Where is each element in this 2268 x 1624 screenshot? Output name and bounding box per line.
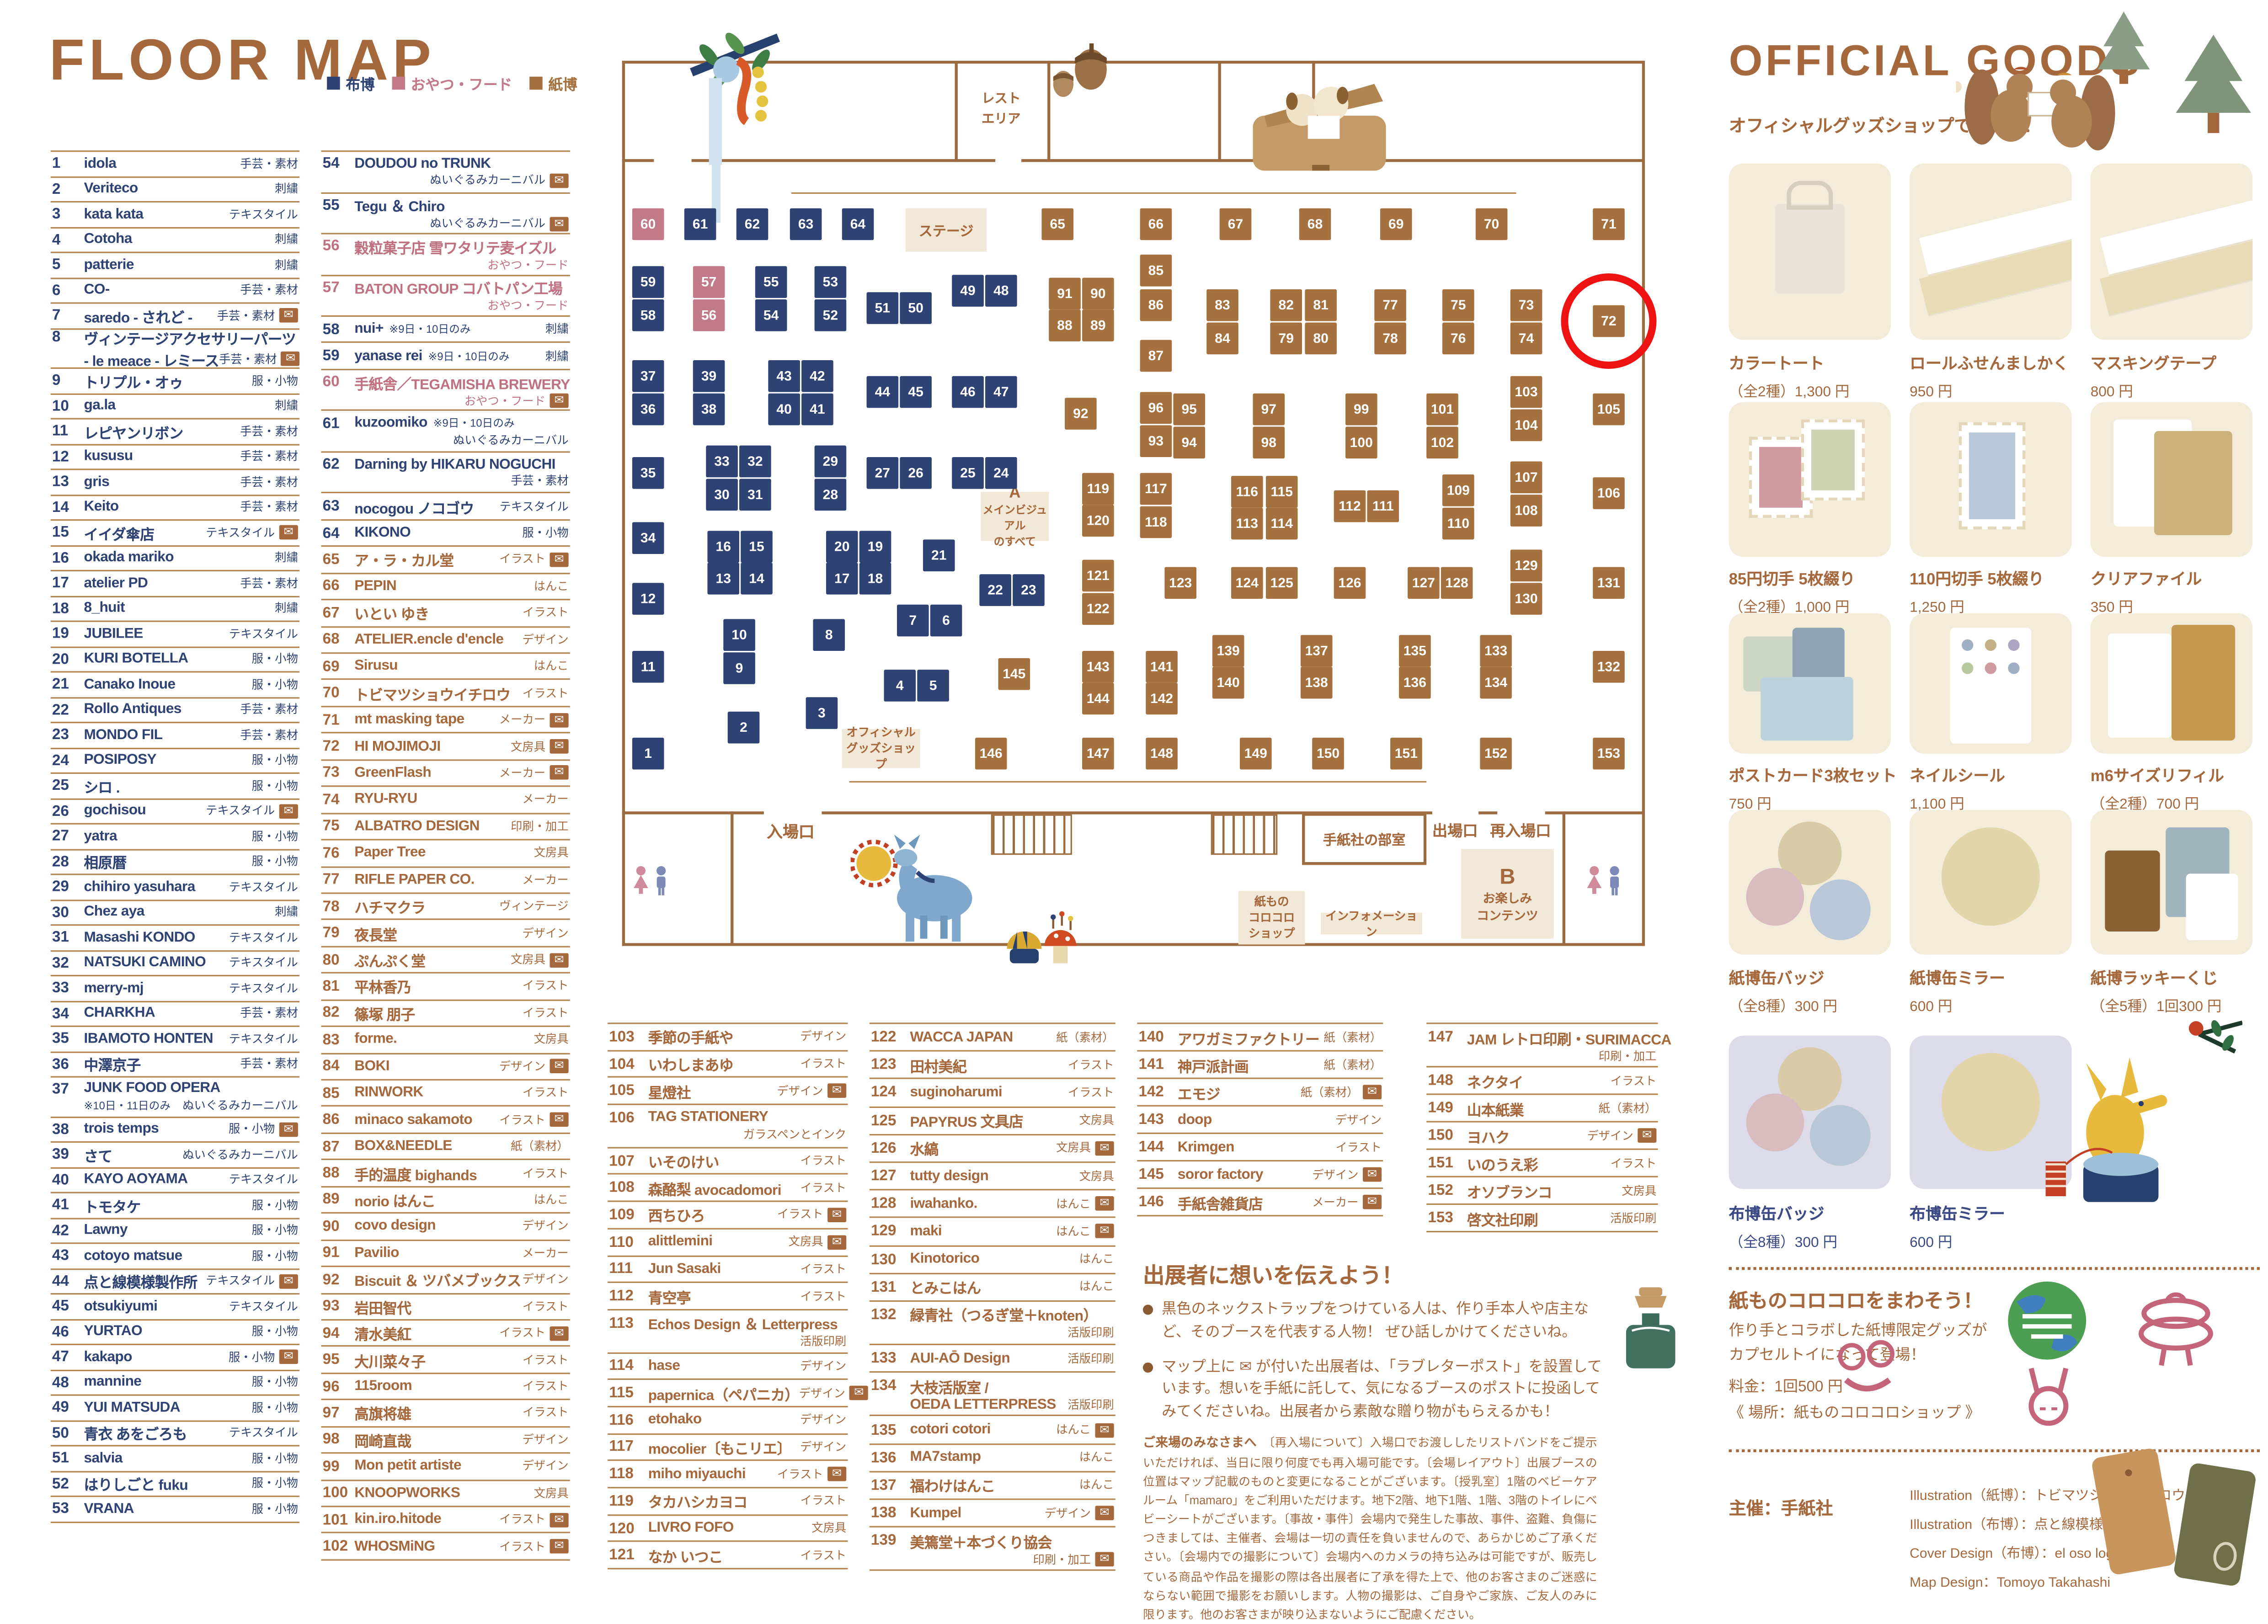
- category-label: 文房具: [811, 1520, 846, 1536]
- notebooks-illustration: [2092, 1441, 2266, 1592]
- exhibitor-row: 72HI MOJIMOJI文房具✉: [321, 732, 570, 759]
- mail-icon: ✉: [550, 173, 569, 188]
- exhibitor-row: 46YURTAO服・小物: [51, 1318, 299, 1343]
- cat-stamp-illustration: [2008, 1357, 2089, 1438]
- exhibitor-name: 美篶堂＋本づくり協会: [910, 1530, 1051, 1551]
- map-booth-8: 8: [813, 619, 845, 651]
- booth-number: 41: [52, 1197, 84, 1214]
- goods-photo-13: [1729, 1036, 1891, 1189]
- mail-icon: ✉: [550, 953, 569, 967]
- exhibitor-name: トビマツショウイチロウ: [354, 682, 510, 704]
- exhibitor-name: Jun Sasaki: [648, 1261, 721, 1277]
- category-label: 服・小物: [252, 752, 298, 768]
- booth-number: 97: [323, 1405, 355, 1422]
- map-booth-69: 69: [1380, 208, 1412, 240]
- official-goods-shop-area: オフィシャルグッズショップ: [842, 729, 920, 768]
- booth-number: 8: [52, 329, 84, 346]
- exhibitor-name: suginoharumi: [910, 1085, 1002, 1101]
- map-booth-107: 107: [1510, 461, 1542, 493]
- booth-number: 9: [52, 372, 84, 389]
- category-label: メーカー: [522, 1245, 568, 1261]
- map-booth-30: 30: [706, 479, 738, 511]
- booth-number: 117: [609, 1438, 648, 1456]
- map-booth-2: 2: [728, 712, 760, 744]
- exhibitor-row: 85RINWORKイラスト: [321, 1079, 570, 1106]
- map-booth-147: 147: [1082, 738, 1114, 770]
- map-booth-68: 68: [1299, 208, 1331, 240]
- map-booth-59: 59: [632, 266, 664, 298]
- exhibitor-name-line2: OEDA LETTERPRESS: [910, 1397, 1056, 1413]
- booth-number: 116: [609, 1411, 648, 1429]
- category-label: 手芸・素材: [240, 1006, 298, 1022]
- category-label: 文房具: [1079, 1168, 1114, 1184]
- category-label: おやつ・フード: [464, 393, 545, 409]
- exhibitor-row: 71mt masking tapeメーカー✉: [321, 706, 570, 732]
- map-booth-122: 122: [1082, 593, 1114, 625]
- exhibitor-name: iwahanko.: [910, 1196, 977, 1212]
- map-booth-64: 64: [842, 208, 874, 240]
- exhibitor-name: 田村美紀: [910, 1054, 966, 1076]
- category-label: 手芸・素材: [240, 727, 298, 743]
- exhibitor-row: 35IBAMOTO HONTENテキスタイル: [51, 1026, 299, 1051]
- booth-number: 153: [1428, 1209, 1467, 1227]
- booth-number: 128: [871, 1195, 910, 1213]
- map-booth-46: 46: [952, 376, 984, 408]
- map-booth-42: 42: [801, 360, 833, 392]
- category-label: イラスト: [523, 1085, 569, 1101]
- booth-number: 73: [323, 764, 355, 782]
- category-label: メーカー: [522, 792, 568, 808]
- exhibitor-row: 61kuzoomiko※9日・10日のみぬいぐるみカーニバル: [321, 410, 570, 451]
- exhibitor-row: 19JUBILEEテキスタイル: [51, 621, 299, 646]
- exhibitor-name: mannine: [84, 1374, 142, 1390]
- map-booth-19: 19: [859, 531, 891, 563]
- exhibitor-row: 122WACCA JAPAN紙（素材）: [870, 1022, 1115, 1050]
- exhibitor-row: 45otsukiyumiテキスタイル: [51, 1293, 299, 1318]
- booth-number: 23: [52, 726, 84, 744]
- category-label: イラスト: [523, 1299, 569, 1315]
- credit-line: Map Design：Tomoyo Takahashi: [1910, 1571, 2110, 1591]
- exhibitor-name: forme.: [354, 1032, 397, 1048]
- booth-number: 143: [1138, 1111, 1177, 1128]
- map-booth-13: 13: [707, 563, 739, 595]
- map-booth-134: 134: [1480, 667, 1512, 699]
- booth-number: 84: [323, 1058, 355, 1075]
- map-booth-130: 130: [1510, 583, 1542, 615]
- booth-number: 13: [52, 474, 84, 491]
- exhibitor-list-122-139: 122WACCA JAPAN紙（素材）123田村美紀イラスト124suginoh…: [870, 1022, 1115, 1571]
- category-label: 刺繍: [545, 348, 569, 364]
- booth-number: 131: [871, 1278, 910, 1296]
- category-label: 文房具: [1056, 1140, 1091, 1156]
- category-label: 服・小物: [252, 1450, 298, 1466]
- category-label: 刺繍: [275, 232, 298, 248]
- exhibitor-row: 68ATELIER.encle d'encleデザイン: [321, 626, 570, 652]
- map-booth-83: 83: [1206, 289, 1238, 321]
- category-label: イラスト: [1068, 1085, 1114, 1101]
- exhibitor-name: HI MOJIMOJI: [354, 739, 440, 755]
- message-bullets: 黒色のネックストラップをつけている人は、作り手本人や店主など、そのブースを代表す…: [1143, 1299, 1606, 1425]
- exhibitor-name: patterie: [84, 257, 134, 273]
- category-label: 服・小物: [229, 1349, 275, 1365]
- booth-number: 108: [609, 1179, 648, 1197]
- category-label: 刺繍: [275, 181, 298, 197]
- map-booth-70: 70: [1476, 208, 1508, 240]
- map-booth-127: 127: [1408, 567, 1440, 599]
- map-booth-57: 57: [693, 266, 725, 298]
- category-label: デザイン: [777, 1083, 823, 1099]
- exhibitor-row: 152オソブランコ文房具: [1426, 1176, 1658, 1203]
- map-booth-125: 125: [1266, 567, 1298, 599]
- map-booth-152: 152: [1480, 738, 1512, 770]
- booth-number: 58: [323, 321, 355, 338]
- category-label: はんこ: [1056, 1196, 1091, 1212]
- exhibitor-row: 82篠塚 朋子イラスト: [321, 999, 570, 1026]
- booth-number: 92: [323, 1271, 355, 1289]
- booth-number: 83: [323, 1031, 355, 1049]
- goods-price: 800 円: [2091, 379, 2133, 400]
- mail-icon: ✉: [1095, 1224, 1114, 1239]
- category-label: 手芸・素材: [217, 308, 275, 324]
- exhibitor-name: atelier PD: [84, 575, 148, 591]
- mail-icon: ✉: [550, 766, 569, 781]
- mail-icon: ✉: [279, 804, 298, 819]
- goods-photo-3: [2091, 164, 2252, 340]
- exhibitor-row: 55Tegu ＆ Chiroぬいぐるみカーニバル✉: [321, 192, 570, 233]
- exhibitor-row: 60手紙舎／TEGAMISHA BREWERYおやつ・フード✉: [321, 369, 570, 410]
- exhibitor-name: Sirusu: [354, 659, 398, 675]
- exhibitor-row: 23MONDO FIL手芸・素材: [51, 722, 299, 747]
- booth-number: 124: [871, 1084, 910, 1102]
- exhibitor-name: alittlemini: [648, 1234, 713, 1250]
- legend-swatch: [327, 77, 340, 90]
- exhibitor-name: hase: [648, 1358, 680, 1374]
- goods-photo-12: [2091, 810, 2252, 954]
- booth-number: 48: [52, 1374, 84, 1391]
- category-label: 文房具: [511, 739, 545, 755]
- map-booth-7: 7: [897, 605, 929, 637]
- map-booth-113: 113: [1231, 508, 1263, 540]
- booth-number: 152: [1428, 1182, 1467, 1199]
- map-booth-140: 140: [1212, 667, 1244, 699]
- exhibitor-name: 水縞: [910, 1137, 938, 1159]
- exhibitor-row: 146手紙舎雑貨店メーカー✉: [1137, 1187, 1383, 1215]
- exhibitor-name: 青空亭: [648, 1285, 691, 1307]
- category-label: 手芸・素材: [240, 500, 298, 516]
- goods-name: 85円切手 5枚綴り: [1729, 567, 1856, 590]
- exhibitor-row: 145soror factoryデザイン✉: [1137, 1160, 1383, 1187]
- exhibitor-name: Pavilio: [354, 1245, 399, 1261]
- mail-icon: ✉: [550, 1512, 569, 1527]
- exhibitor-name: POSIPOSY: [84, 752, 157, 768]
- map-booth-88: 88: [1049, 309, 1081, 341]
- category-label: デザイン: [1587, 1128, 1633, 1144]
- category-label: 紙（素材）: [511, 1139, 569, 1155]
- exhibitor-row: 3kata kataテキスタイル: [51, 201, 299, 226]
- category-label: 印刷・加工: [1033, 1552, 1091, 1568]
- category-label: 刺繍: [275, 550, 298, 566]
- map-booth-66: 66: [1140, 208, 1172, 240]
- exhibitor-name: Biscuit ＆ ツバメブックス: [354, 1269, 521, 1290]
- category-label: テキスタイル: [229, 930, 298, 946]
- booth-number: 30: [52, 904, 84, 921]
- category-label: 文房具: [789, 1234, 823, 1250]
- goods-name: 110円切手 5枚綴り: [1910, 567, 2044, 590]
- map-booth-60: 60: [632, 208, 664, 240]
- category-label: デザイン: [799, 1385, 845, 1401]
- map-booth-34: 34: [632, 522, 664, 554]
- category-label: ぬいぐるみカーニバル: [453, 432, 569, 448]
- exhibitor-row: 133AUI-AŌ Design活版印刷: [870, 1344, 1115, 1372]
- map-booth-120: 120: [1082, 505, 1114, 537]
- mail-icon: ✉: [550, 1539, 569, 1554]
- goods-name: 紙博缶バッジ: [1729, 966, 1825, 990]
- booth-number: 16: [52, 549, 84, 567]
- category-label: はんこ: [534, 579, 569, 595]
- map-booth-3: 3: [806, 697, 838, 729]
- category-label: 手芸・素材: [240, 575, 298, 591]
- booth-number: 29: [52, 879, 84, 896]
- category-label: はんこ: [1056, 1224, 1091, 1240]
- map-booth-117: 117: [1140, 473, 1172, 505]
- category-label: 刺繍: [275, 257, 298, 273]
- exhibitor-name: ATELIER.encle d'encle: [354, 632, 503, 648]
- category-label: デザイン: [800, 1029, 846, 1045]
- category-label: イラスト: [523, 685, 569, 701]
- exhibitor-row: 33merry-mjテキスタイル: [51, 975, 299, 1000]
- exhibitor-row: 77RIFLE PAPER CO.メーカー: [321, 866, 570, 892]
- booth-number: 5: [52, 256, 84, 274]
- category-label: 紙（素材）: [1056, 1029, 1114, 1045]
- category-label: 手芸・素材: [240, 1056, 298, 1072]
- map-booth-103: 103: [1510, 376, 1542, 408]
- exhibitor-name: RYU-RYU: [354, 792, 417, 808]
- exhibitor-row: 9トリプル・オゥ服・小物: [51, 367, 299, 393]
- booth-number: 89: [323, 1191, 355, 1209]
- map-booth-141: 141: [1146, 651, 1178, 683]
- map-booth-149: 149: [1240, 738, 1272, 770]
- map-booth-92: 92: [1065, 398, 1097, 430]
- exhibitor-name: ALBATRO DESIGN: [354, 819, 480, 835]
- map-booth-47: 47: [985, 376, 1017, 408]
- legend-label: おやつ・フード: [411, 72, 512, 94]
- exhibitor-name: kin.iro.hitode: [354, 1512, 441, 1528]
- map-booth-4: 4: [884, 670, 916, 702]
- map-booth-36: 36: [632, 394, 664, 426]
- map-booth-73: 73: [1510, 289, 1542, 321]
- booth-number: 27: [52, 828, 84, 845]
- map-booth-102: 102: [1426, 427, 1458, 459]
- goods-photo-10: [1729, 810, 1891, 954]
- map-booth-16: 16: [707, 531, 739, 563]
- booth-number: 26: [52, 803, 84, 820]
- mail-icon: ✉: [827, 1235, 846, 1249]
- exhibitor-name: salvia: [84, 1450, 123, 1466]
- mail-icon: ✉: [281, 352, 300, 367]
- booth-number: 133: [871, 1350, 910, 1367]
- map-booth-32: 32: [739, 446, 771, 478]
- exhibitor-list-147-153: 147JAM レトロ印刷・SURIMACCA印刷・加工148ネクタイイラスト14…: [1426, 1022, 1658, 1232]
- exhibitor-name: 星燈社: [648, 1080, 691, 1102]
- booth-number: 136: [871, 1449, 910, 1466]
- exhibitor-name: DOUDOU no TRUNK: [354, 156, 491, 172]
- booth-number: 45: [52, 1298, 84, 1315]
- category-label: デザイン: [499, 1059, 545, 1075]
- category-label: イラスト: [1611, 1155, 1657, 1171]
- category-label: イラスト: [523, 1165, 569, 1181]
- exhibitor-name: Tegu ＆ Chiro: [354, 194, 445, 216]
- category-label: イラスト: [499, 1539, 545, 1555]
- goods-price: （全2種）1,300 円: [1729, 379, 1850, 400]
- exhibitor-name: いわしまあゆ: [648, 1053, 733, 1075]
- exhibitor-row: 59yanase rei※9日・10日のみ刺繍: [321, 342, 570, 368]
- category-label: デザイン: [522, 1219, 568, 1235]
- exhibitor-name: maki: [910, 1224, 942, 1240]
- schedule-note: ※9日・10日のみ: [433, 415, 515, 431]
- booth-number: 142: [1138, 1083, 1177, 1101]
- exhibitor-row: 42Lawny服・小物: [51, 1217, 299, 1242]
- booth-number: 96: [323, 1378, 355, 1395]
- map-booth-99: 99: [1345, 394, 1377, 426]
- exhibitor-row: 4Cotoha刺繍: [51, 226, 299, 251]
- exhibitor-row: 30Chez aya刺繍: [51, 899, 299, 924]
- exhibitor-row: 14Keito手芸・素材: [51, 494, 299, 519]
- exhibitor-row: 43cotoyo matsue服・小物: [51, 1242, 299, 1267]
- map-booth-41: 41: [801, 394, 833, 426]
- category-label: 活版印刷: [800, 1334, 846, 1350]
- exhibitor-name: YURTAO: [84, 1324, 142, 1340]
- exhibitor-row: 40KAYO AOYAMAテキスタイル: [51, 1166, 299, 1192]
- information-area: インフォメーション: [1321, 913, 1422, 934]
- exhibitor-row: 106TAG STATIONERYガラスペンとインク: [608, 1104, 848, 1147]
- exhibitor-name: 神戸派計画: [1178, 1054, 1249, 1075]
- map-booth-131: 131: [1593, 567, 1625, 599]
- exhibitor-row: 86minaco sakamotoイラスト✉: [321, 1106, 570, 1132]
- b-fun-content-area: B お楽しみ コンテンツ: [1461, 849, 1554, 939]
- goods-name: ポストカード3枚セット: [1729, 764, 1897, 787]
- exhibitor-name: chihiro yasuhara: [84, 879, 195, 895]
- map-booth-6: 6: [930, 605, 962, 637]
- map-booth-81: 81: [1305, 289, 1337, 321]
- exhibitor-row: 75ALBATRO DESIGN印刷・加工: [321, 812, 570, 839]
- exhibitor-name: Veriteco: [84, 181, 138, 197]
- category-label: 活版印刷: [1067, 1397, 1114, 1413]
- booth-number: 85: [323, 1084, 355, 1102]
- booth-number: 21: [52, 676, 84, 693]
- exhibitor-name: JUNK FOOD OPERA: [84, 1081, 220, 1097]
- exhibitor-name: KNOOPWORKS: [354, 1485, 460, 1501]
- booth-number: 19: [52, 625, 84, 643]
- map-booth-110: 110: [1442, 508, 1474, 540]
- map-booth-5: 5: [917, 670, 949, 702]
- exhibitor-name: kakapo: [84, 1349, 132, 1365]
- category-label: デザイン: [522, 632, 568, 648]
- exhibitor-row: 88手的温度 bighandsイラスト: [321, 1159, 570, 1186]
- booth-number: 88: [323, 1165, 355, 1182]
- booth-number: 50: [52, 1424, 84, 1442]
- booth-number: 118: [609, 1465, 648, 1483]
- exhibitor-row: 149山本紙業紙（素材）: [1426, 1093, 1658, 1121]
- map-booth-87: 87: [1140, 340, 1172, 372]
- category-label: デザイン: [1312, 1166, 1358, 1182]
- map-booth-21: 21: [923, 539, 955, 571]
- goods-name: ネイルシール: [1910, 764, 2005, 787]
- map-booth-40: 40: [768, 394, 800, 426]
- exhibitor-list-103-121: 103季節の手紙やデザイン104いわしまあゆイラスト105星燈社デザイン✉106…: [608, 1022, 848, 1569]
- map-booth-50: 50: [900, 292, 932, 324]
- booth-number: 46: [52, 1323, 84, 1341]
- exhibitor-name: MA7stamp: [910, 1450, 981, 1466]
- booth-number: 126: [871, 1139, 910, 1157]
- map-booth-150: 150: [1312, 738, 1344, 770]
- message-bullet: マップ上に ✉ が付いた出展者は、「ラブレターポスト」を設置しています。想いを手…: [1143, 1356, 1606, 1425]
- category-label: 服・小物: [252, 1324, 298, 1340]
- exhibitor-name: 手的温度 bighands: [354, 1162, 477, 1184]
- booth-number: 15: [52, 524, 84, 541]
- visitor-notice: ご来場のみなさまへ 〔再入場について〕入場口でお渡ししたリストバンドをご提示いた…: [1143, 1433, 1597, 1624]
- exhibitor-row: 31Masashi KONDOテキスタイル: [51, 924, 299, 949]
- booth-number: 114: [609, 1358, 648, 1375]
- booth-number: 62: [323, 456, 355, 473]
- floor-map-flyer: FLOOR MAP 布博おやつ・フード紙博 1idola手芸・素材2Verite…: [0, 0, 2268, 1604]
- booth-number: 55: [323, 197, 355, 214]
- exhibitor-row: 90covo designデザイン: [321, 1212, 570, 1239]
- booth-number: 52: [52, 1475, 84, 1492]
- exhibitor-name: 山本紙業: [1467, 1097, 1524, 1118]
- exhibitor-row: 119タカハシカヨコイラスト: [608, 1487, 848, 1514]
- exhibitor-name: gochisou: [84, 803, 146, 819]
- exhibitor-name: Echos Design ＆ Letterpress: [648, 1312, 838, 1334]
- exhibitor-row: 102WHOSMiNGイラスト✉: [321, 1533, 570, 1559]
- booth-number: 66: [323, 578, 355, 595]
- booth-number: 151: [1428, 1154, 1467, 1171]
- exhibitor-name: yanase rei: [354, 348, 422, 364]
- exhibitor-name: Darning by HIKARU NOGUCHI: [354, 457, 555, 473]
- exhibitor-row: 81平林香乃イラスト: [321, 972, 570, 999]
- exhibitor-name: 清水美紅: [354, 1322, 411, 1344]
- exhibitor-name: BATON GROUP コバトパン工場: [354, 277, 562, 298]
- booth-number: 36: [52, 1055, 84, 1073]
- map-booth-44: 44: [867, 376, 899, 408]
- category-label: おやつ・フード: [487, 257, 568, 273]
- booth-number: 75: [323, 818, 355, 835]
- exhibitor-row: 7saredo - されど -手芸・素材✉: [51, 302, 299, 327]
- map-booth-63: 63: [790, 208, 822, 240]
- exhibitor-row: 131とみこはんはんこ: [870, 1273, 1115, 1300]
- category-label: 服・小物: [522, 525, 568, 541]
- category-label: 服・小物: [252, 1223, 298, 1239]
- exhibitor-row: 8ヴィンテージアクセサリーパーツ- le meace - レミース手芸・素材✉: [51, 328, 299, 367]
- booth-number: 74: [323, 791, 355, 809]
- exhibitor-name: アワガミファクトリー: [1178, 1026, 1319, 1048]
- exhibitor-name: とみこはん: [910, 1276, 981, 1298]
- category-label: テキスタイル: [229, 980, 298, 996]
- exhibitor-row: 2Veriteco刺繍: [51, 176, 299, 201]
- map-booth-11: 11: [632, 651, 664, 683]
- booth-number: 12: [52, 448, 84, 465]
- category-label: はんこ: [1079, 1279, 1114, 1295]
- exhibitor-row: 84BOKIデザイン✉: [321, 1052, 570, 1079]
- main-visual-area: A メインビジュアル のすべて: [981, 492, 1049, 541]
- mail-icon: ✉: [1095, 1552, 1114, 1567]
- exhibitor-name: 高旗将雄: [354, 1402, 411, 1424]
- map-booth-45: 45: [900, 376, 932, 408]
- category-label: おやつ・フード: [487, 298, 568, 314]
- exhibitor-name: trois temps: [84, 1121, 159, 1137]
- exhibitor-row: 12kususu手芸・素材: [51, 443, 299, 469]
- booth-number: 34: [52, 1005, 84, 1022]
- mail-icon: ✉: [1638, 1128, 1656, 1143]
